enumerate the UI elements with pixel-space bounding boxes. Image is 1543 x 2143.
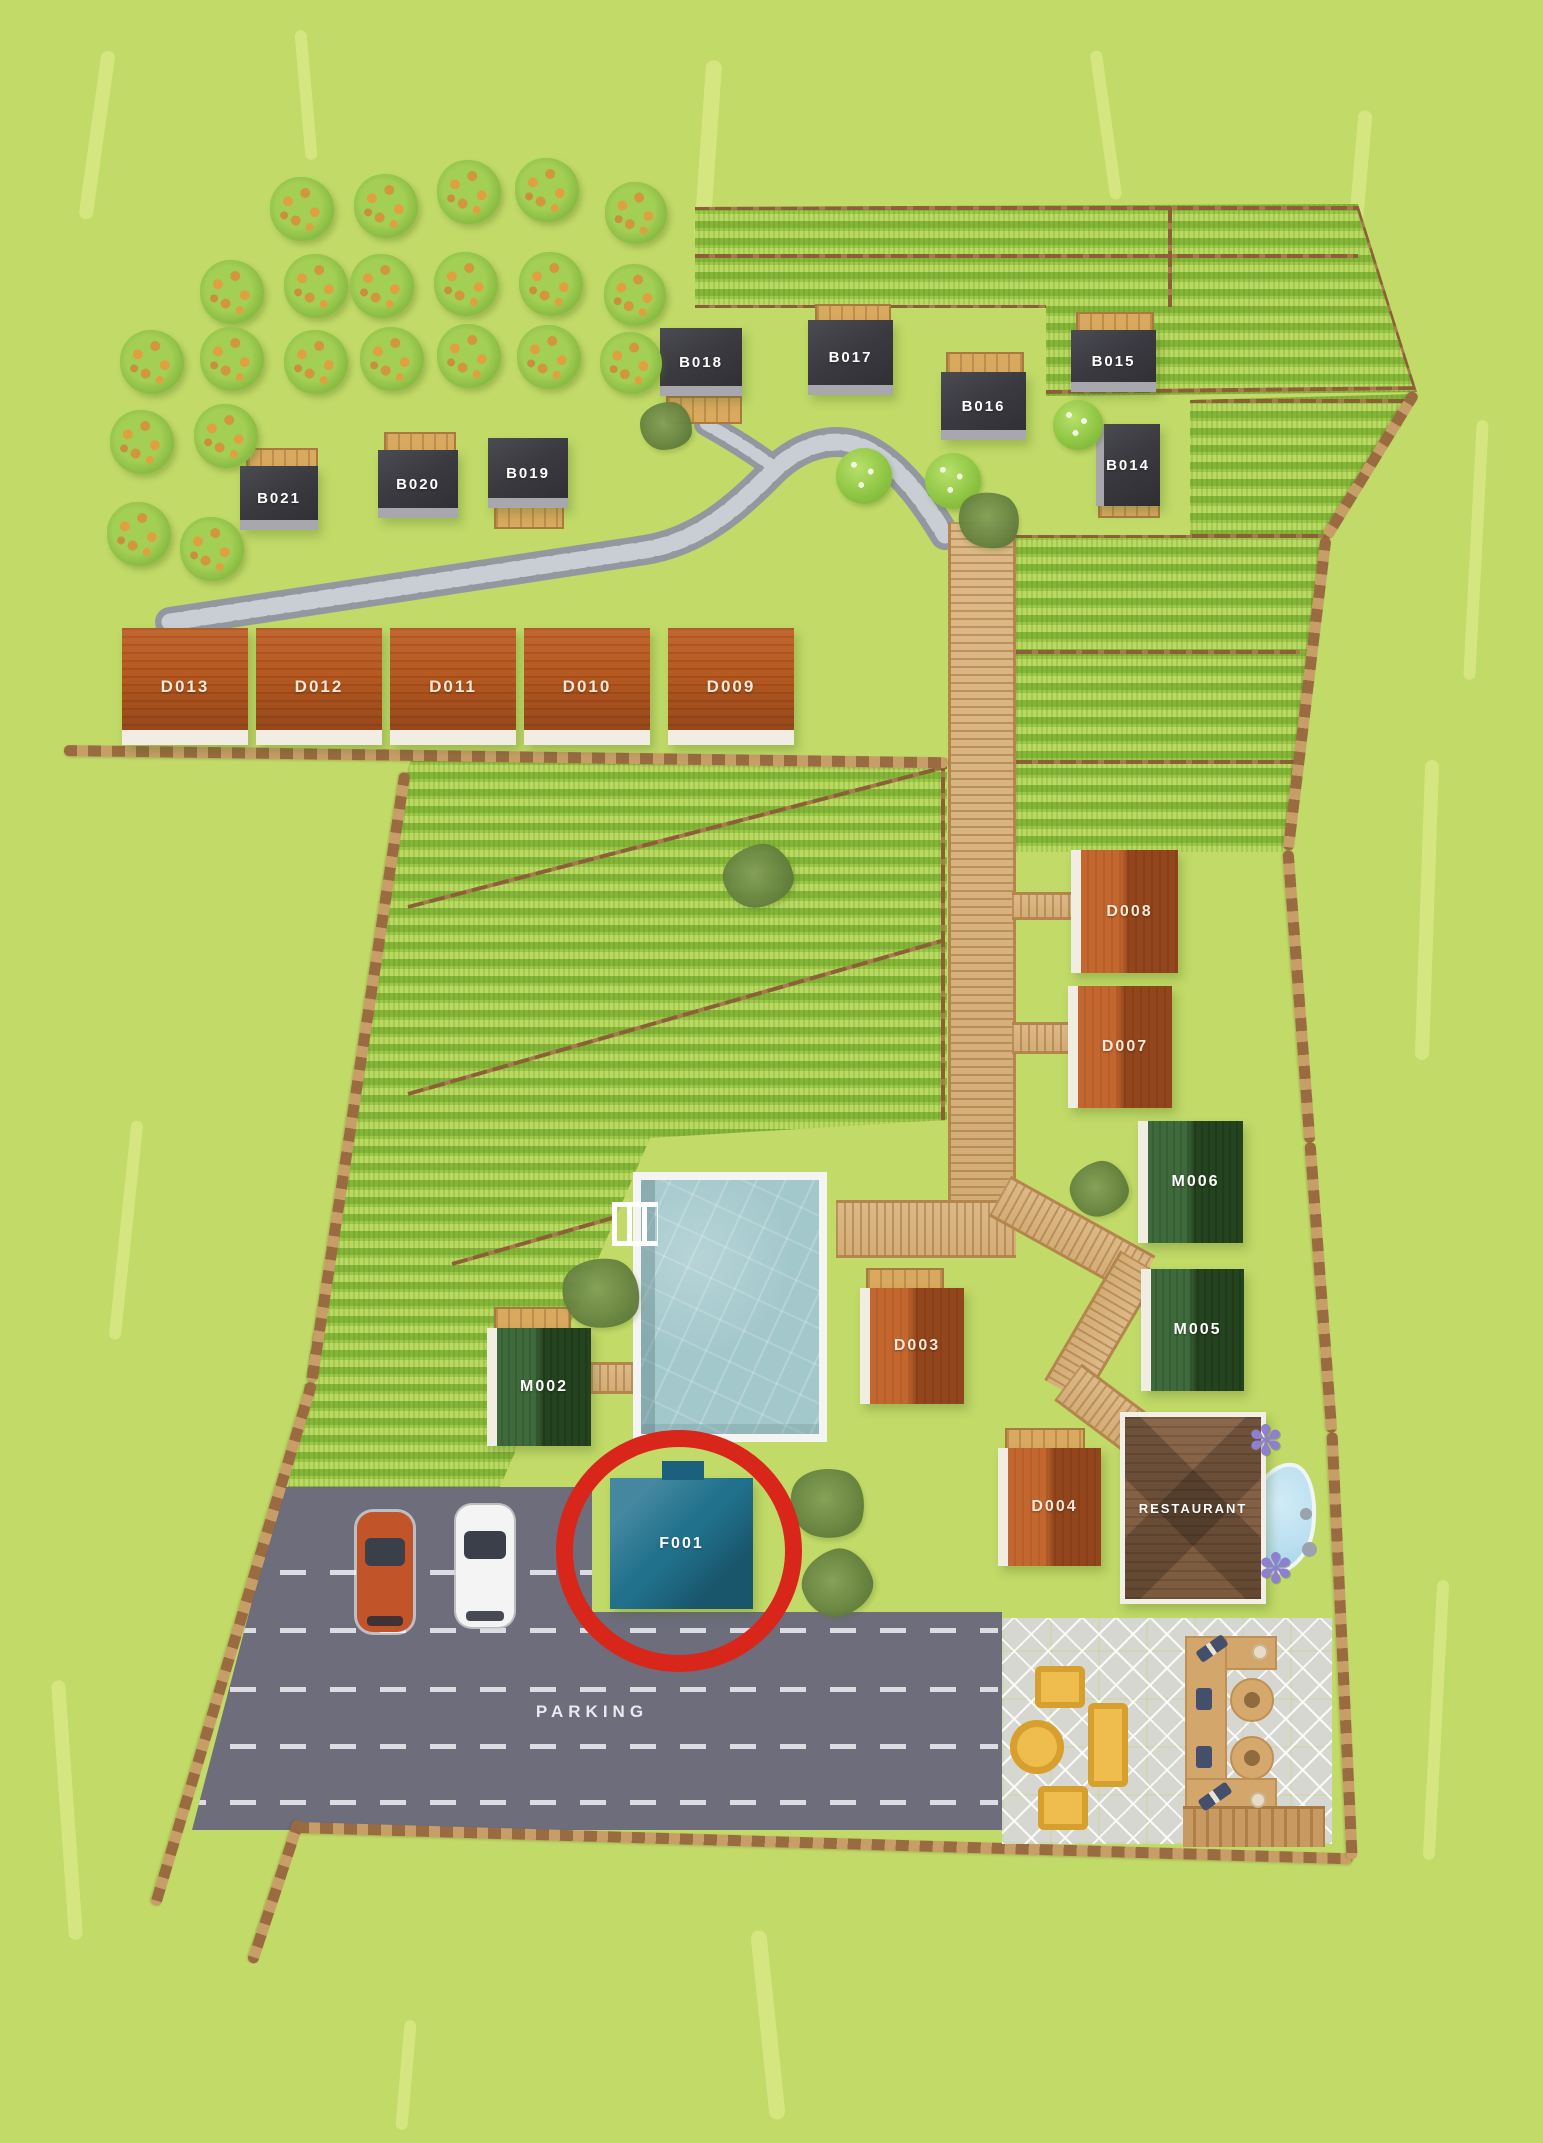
bistro-table xyxy=(1230,1678,1274,1722)
lounge-chair xyxy=(1038,1786,1088,1830)
grass-streak xyxy=(1090,50,1123,200)
building-label: M006 xyxy=(1171,1173,1219,1191)
deck xyxy=(1076,312,1154,332)
field-fence xyxy=(1168,207,1172,307)
building-d010: D010 xyxy=(524,628,650,745)
car-windshield xyxy=(365,1538,405,1566)
lounge-sofa xyxy=(1088,1703,1128,1787)
bistro-table xyxy=(1230,1736,1274,1780)
flower-icon: ✽ xyxy=(1248,1420,1283,1462)
bush-icon xyxy=(1053,400,1103,450)
building-b017: B017 xyxy=(808,320,893,395)
grass-streak xyxy=(109,1120,144,1340)
building-b015: B015 xyxy=(1071,330,1156,392)
building-label: D010 xyxy=(563,677,612,697)
building-label: D008 xyxy=(1106,903,1152,921)
building-label: D012 xyxy=(295,677,344,697)
table-plate xyxy=(1250,1792,1266,1808)
tree-icon xyxy=(434,252,498,316)
white-car xyxy=(456,1505,514,1627)
car-rear-window xyxy=(367,1616,403,1626)
building-b020: B020 xyxy=(378,450,458,518)
building-b021: B021 xyxy=(240,466,318,530)
dining-bench xyxy=(1196,1746,1212,1768)
parking-lane-line xyxy=(180,1687,998,1692)
tree-icon xyxy=(600,332,662,394)
field-fence xyxy=(407,765,947,909)
building-d003: D003 xyxy=(860,1288,964,1404)
grass-streak xyxy=(51,1680,83,1940)
building-b019: B019 xyxy=(488,438,568,508)
tree-icon xyxy=(354,174,418,238)
building-d008: D008 xyxy=(1071,850,1178,973)
building-label: D009 xyxy=(707,677,756,697)
building-b018: B018 xyxy=(660,328,742,396)
tree-icon xyxy=(200,327,264,391)
deck xyxy=(866,1268,944,1290)
highlight-circle xyxy=(556,1430,802,1672)
vineyard-field-east xyxy=(1016,394,1415,852)
boundary-fence xyxy=(247,1819,305,1965)
grass-streak xyxy=(395,2020,417,2131)
building-b014: B014 xyxy=(1096,424,1160,506)
orange-car xyxy=(357,1512,413,1632)
parking-lane-line xyxy=(180,1800,998,1805)
plant-icon xyxy=(640,402,692,450)
deck xyxy=(494,505,564,529)
tree-icon xyxy=(515,158,579,222)
building-label: B017 xyxy=(829,349,873,366)
tree-icon xyxy=(200,260,264,324)
building-label: B020 xyxy=(396,476,440,493)
deck xyxy=(1005,1428,1085,1450)
tree-icon xyxy=(194,404,258,468)
boardwalk-branch-d007 xyxy=(1012,1022,1072,1054)
building-label: D011 xyxy=(429,677,477,697)
tree-icon xyxy=(270,177,334,241)
pool-ladder-icon xyxy=(612,1202,658,1246)
grass-streak xyxy=(78,50,116,220)
vineyard-field-north xyxy=(693,204,1417,396)
building-d009: D009 xyxy=(668,628,794,745)
building-label: D007 xyxy=(1102,1038,1148,1056)
building-label: B016 xyxy=(962,398,1006,415)
building-label: B021 xyxy=(257,490,301,507)
building-restaurant: RESTAURANT xyxy=(1120,1412,1266,1604)
field-fence xyxy=(407,939,944,1096)
bush-icon xyxy=(836,448,892,504)
building-label: B014 xyxy=(1106,457,1150,474)
car-windshield xyxy=(464,1531,506,1559)
tree-icon xyxy=(517,325,581,389)
field-fence xyxy=(1016,760,1294,764)
building-d004: D004 xyxy=(998,1448,1101,1566)
building-m002: M002 xyxy=(487,1328,591,1446)
grass-streak xyxy=(1463,420,1489,680)
building-label: B015 xyxy=(1092,353,1136,370)
tree-icon xyxy=(605,182,667,244)
building-b016: B016 xyxy=(941,372,1026,440)
tree-icon xyxy=(604,264,666,326)
dining-bench xyxy=(1196,1688,1212,1710)
deck xyxy=(494,1307,571,1330)
pond-stone xyxy=(1302,1542,1317,1557)
tree-icon xyxy=(437,160,501,224)
field-fence xyxy=(1016,534,1328,538)
building-label: D013 xyxy=(161,677,210,697)
pond-stone xyxy=(1300,1508,1312,1520)
field-fence xyxy=(693,254,1358,258)
tree-icon xyxy=(437,324,501,388)
grass-streak xyxy=(1415,760,1439,1060)
tree-icon xyxy=(519,252,583,316)
field-fence xyxy=(1356,205,1419,394)
tree-icon xyxy=(360,327,424,391)
grass-streak xyxy=(294,30,317,161)
tree-icon xyxy=(284,330,348,394)
building-d011: D011 xyxy=(390,628,516,745)
parking-lane-line xyxy=(180,1744,998,1749)
field-fence xyxy=(1190,399,1415,403)
lounge-round-table xyxy=(1010,1720,1064,1774)
tree-icon xyxy=(107,502,171,566)
deck xyxy=(246,448,318,468)
boundary-fence xyxy=(1305,1142,1338,1433)
boardwalk-branch-d008 xyxy=(1012,892,1074,920)
building-label: B018 xyxy=(679,354,723,371)
building-d012: D012 xyxy=(256,628,382,745)
building-label: M005 xyxy=(1173,1321,1221,1339)
tree-icon xyxy=(350,254,414,318)
tree-icon xyxy=(110,410,174,474)
building-label: D003 xyxy=(894,1337,940,1355)
boundary-fence xyxy=(1283,850,1316,1143)
deck xyxy=(946,352,1024,374)
building-m006: M006 xyxy=(1138,1121,1243,1243)
building-d013: D013 xyxy=(122,628,248,745)
tree-icon xyxy=(180,517,244,581)
table-plate xyxy=(1252,1644,1268,1660)
grass-streak xyxy=(1423,1580,1450,1860)
building-label: RESTAURANT xyxy=(1139,1501,1248,1516)
car-rear-window xyxy=(466,1611,504,1621)
flower-icon: ✽ xyxy=(1258,1548,1293,1590)
terrace-wood-fence xyxy=(1183,1806,1325,1847)
deck xyxy=(384,432,456,452)
building-label: B019 xyxy=(506,465,550,482)
boardwalk-pool xyxy=(836,1200,1016,1258)
field-fence xyxy=(1016,650,1300,654)
field-fence xyxy=(693,206,1358,210)
building-d007: D007 xyxy=(1068,986,1172,1108)
building-m005: M005 xyxy=(1141,1269,1244,1391)
tree-icon xyxy=(120,330,184,394)
lounge-chair xyxy=(1035,1666,1085,1708)
resort-site-map: PARKING B021 B020 B019 B018 xyxy=(0,0,1543,2143)
tree-icon xyxy=(284,254,348,318)
building-label: D004 xyxy=(1031,1498,1077,1516)
boardwalk-main xyxy=(948,522,1016,1204)
swimming-pool xyxy=(633,1172,827,1442)
building-label: M002 xyxy=(520,1378,568,1396)
grass-streak xyxy=(750,1930,786,2121)
